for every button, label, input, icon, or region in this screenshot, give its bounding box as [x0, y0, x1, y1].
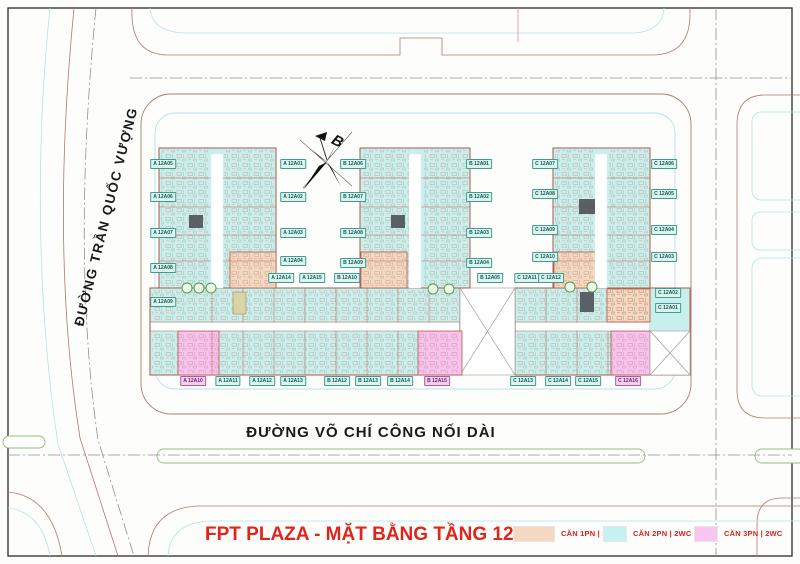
unit-tag: C 12A03 — [651, 252, 677, 262]
unit-tag: C 12A07 — [532, 159, 558, 169]
legend-swatch-3pn — [694, 526, 718, 542]
unit-tag: A 12A12 — [249, 376, 275, 386]
unit-tag: C 12A04 — [651, 225, 677, 235]
unit-tag: A 12A07 — [150, 228, 176, 238]
unit-tag: A 12A11 — [215, 376, 240, 386]
unit-tag: C 12A09 — [532, 225, 558, 235]
unit-tag: B 12A15 — [424, 376, 450, 386]
unit-tag-layer: A 12A05A 12A06A 12A07A 12A08A 12A09A 12A… — [0, 0, 800, 564]
unit-tag: B 12A07 — [340, 192, 366, 202]
unit-tag: B 12A10 — [334, 273, 360, 283]
unit-tag: A 12A02 — [280, 192, 306, 202]
legend-swatch-2pn — [603, 526, 627, 542]
unit-tag: C 12A10 — [532, 252, 558, 262]
unit-tag: A 12A14 — [268, 273, 294, 283]
unit-tag: C 12A11 — [514, 273, 539, 283]
unit-tag: C 12A13 — [510, 376, 536, 386]
unit-tag: B 12A14 — [387, 376, 413, 386]
unit-tag: A 12A15 — [299, 273, 325, 283]
unit-tag: B 12A08 — [340, 228, 366, 238]
unit-tag: A 12A09 — [150, 297, 176, 307]
unit-tag: A 12A13 — [280, 376, 306, 386]
unit-tag: A 12A01 — [280, 159, 306, 169]
unit-tag: C 12A12 — [538, 273, 564, 283]
unit-tag: C 12A08 — [532, 189, 558, 199]
legend-item-2pn: CĂN 2PN | 2WC — [603, 526, 691, 541]
legend-swatch-1pn — [513, 526, 555, 542]
unit-tag: B 12A04 — [466, 258, 492, 268]
unit-tag: B 12A01 — [466, 159, 492, 169]
unit-tag: A 12A04 — [280, 256, 306, 266]
unit-tag: A 12A08 — [150, 263, 176, 273]
unit-tag: C 12A15 — [575, 376, 601, 386]
unit-tag: C 12A01 — [655, 303, 681, 313]
unit-tag: B 12A09 — [340, 258, 366, 268]
unit-tag: B 12A06 — [340, 159, 366, 169]
unit-tag: B 12A13 — [355, 376, 381, 386]
legend-item-3pn: CĂN 3PN | 2WC — [694, 526, 782, 541]
unit-tag: A 12A10 — [180, 376, 206, 386]
legend-label-3pn: CĂN 3PN | 2WC — [724, 529, 782, 538]
unit-tag: C 12A05 — [651, 189, 677, 199]
unit-tag: C 12A02 — [655, 288, 681, 298]
floor-plan-canvas: A 12A05A 12A06A 12A07A 12A08A 12A09A 12A… — [0, 0, 800, 564]
unit-tag: C 12A14 — [545, 376, 571, 386]
legend-label-2pn: CĂN 2PN | 2WC — [633, 529, 691, 538]
unit-tag: C 12A16 — [615, 376, 641, 386]
unit-tag: B 12A12 — [324, 376, 350, 386]
unit-tag: B 12A02 — [466, 192, 492, 202]
unit-tag: A 12A05 — [150, 159, 176, 169]
unit-tag: B 12A05 — [477, 273, 503, 283]
street-label-vo-chi-cong: ĐƯỜNG VÕ CHÍ CÔNG NỐI DÀI — [221, 424, 521, 441]
unit-tag: B 12A03 — [466, 228, 492, 238]
unit-tag: A 12A03 — [280, 228, 306, 238]
plan-title: FPT PLAZA - MẶT BẰNG TẦNG 12A — [205, 524, 527, 546]
unit-tag: A 12A06 — [150, 192, 176, 202]
unit-tag: C 12A06 — [651, 159, 677, 169]
